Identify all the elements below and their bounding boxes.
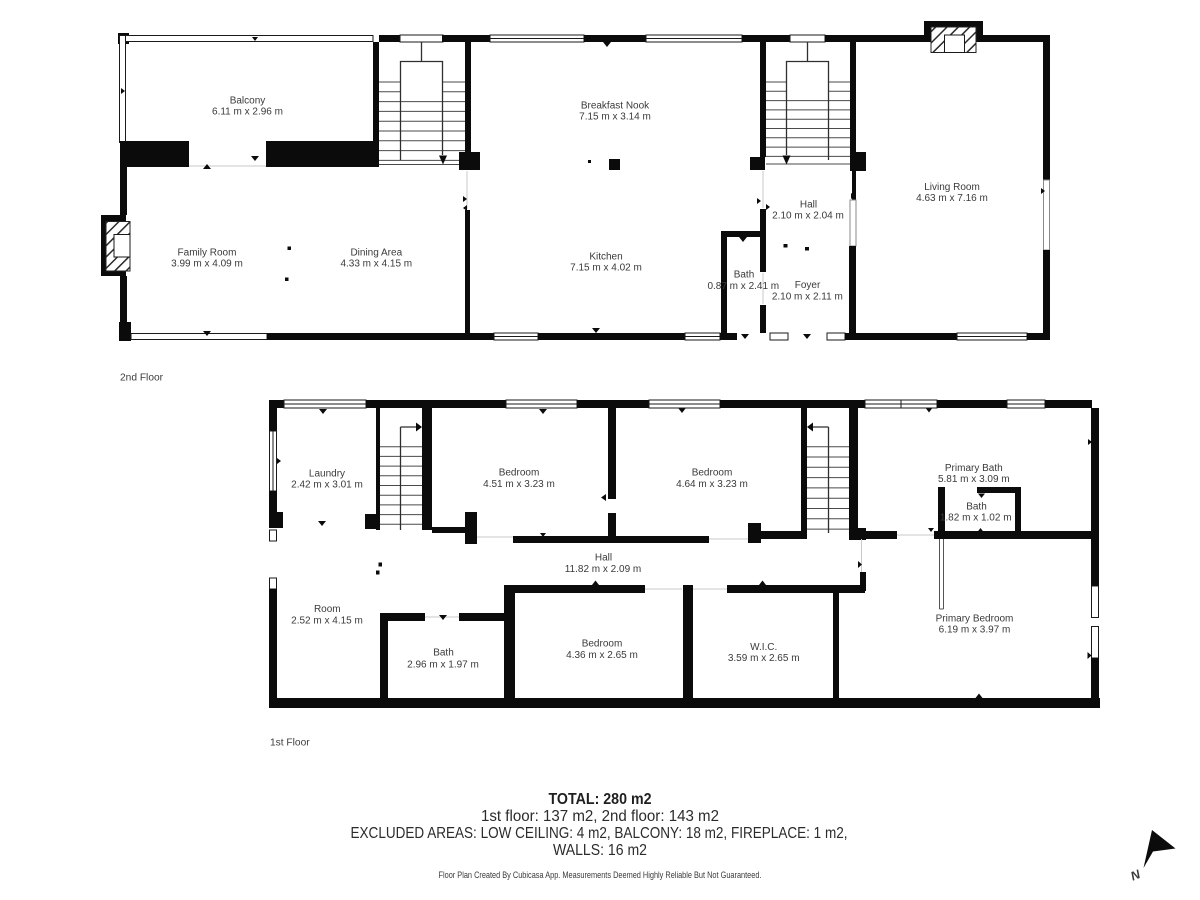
svg-text:0.87 m x 2.41 m: 0.87 m x 2.41 m: [707, 281, 779, 292]
svg-text:3.59 m x 2.65 m: 3.59 m x 2.65 m: [728, 653, 800, 664]
svg-text:Dining Area: Dining Area: [350, 247, 402, 258]
svg-text:Bedroom: Bedroom: [692, 468, 733, 479]
svg-text:W.I.C.: W.I.C.: [750, 642, 777, 653]
svg-text:Bath: Bath: [433, 648, 454, 659]
svg-text:Foyer: Foyer: [795, 280, 821, 291]
svg-text:Primary Bath: Primary Bath: [945, 463, 1003, 474]
svg-text:2.10 m x 2.11 m: 2.10 m x 2.11 m: [772, 291, 843, 302]
svg-text:2.96 m x 1.97 m: 2.96 m x 1.97 m: [407, 659, 479, 670]
svg-text:EXCLUDED AREAS: LOW CEILING: 4: EXCLUDED AREAS: LOW CEILING: 4 m2, BALCO…: [351, 825, 848, 842]
svg-text:TOTAL: 280 m2: TOTAL: 280 m2: [549, 791, 652, 808]
svg-text:11.82 m x 2.09 m: 11.82 m x 2.09 m: [565, 564, 642, 575]
svg-text:Bedroom: Bedroom: [582, 639, 623, 650]
svg-text:6.11 m x 2.96 m: 6.11 m x 2.96 m: [212, 107, 283, 118]
svg-text:2.42 m x 3.01 m: 2.42 m x 3.01 m: [291, 480, 363, 491]
svg-text:Room: Room: [314, 604, 341, 615]
svg-text:Bedroom: Bedroom: [499, 468, 540, 479]
svg-text:2nd Floor: 2nd Floor: [120, 373, 164, 384]
svg-text:1st floor: 137 m2, 2nd floor:: 1st floor: 137 m2, 2nd floor: 143 m2: [481, 808, 719, 825]
svg-text:4.63 m x 7.16 m: 4.63 m x 7.16 m: [916, 193, 988, 204]
svg-text:Laundry: Laundry: [309, 468, 345, 479]
svg-text:7.15 m x 3.14 m: 7.15 m x 3.14 m: [579, 112, 651, 123]
svg-text:WALLS: 16 m2: WALLS: 16 m2: [553, 842, 647, 859]
svg-text:Kitchen: Kitchen: [589, 251, 622, 262]
svg-text:3.99 m x 4.09 m: 3.99 m x 4.09 m: [171, 259, 243, 270]
svg-text:Primary Bedroom: Primary Bedroom: [936, 613, 1014, 624]
svg-text:1.82 m x 1.02 m: 1.82 m x 1.02 m: [940, 513, 1012, 524]
svg-text:Family Room: Family Room: [178, 247, 237, 258]
svg-text:Bath: Bath: [966, 501, 987, 512]
svg-text:6.19 m x 3.97 m: 6.19 m x 3.97 m: [939, 625, 1011, 636]
svg-text:2.52 m x 4.15 m: 2.52 m x 4.15 m: [291, 615, 363, 626]
svg-text:Floor Plan Created By Cubicasa: Floor Plan Created By Cubicasa App. Meas…: [439, 870, 762, 880]
svg-text:4.51 m x 3.23 m: 4.51 m x 3.23 m: [483, 479, 555, 490]
svg-text:Bath: Bath: [734, 270, 755, 281]
svg-text:4.33 m x 4.15 m: 4.33 m x 4.15 m: [340, 259, 412, 270]
svg-text:4.64 m x 3.23 m: 4.64 m x 3.23 m: [676, 479, 748, 490]
svg-text:Breakfast Nook: Breakfast Nook: [581, 100, 650, 111]
svg-text:2.10 m x 2.04 m: 2.10 m x 2.04 m: [772, 211, 844, 222]
svg-text:1st Floor: 1st Floor: [270, 737, 310, 748]
svg-text:Hall: Hall: [595, 553, 612, 564]
svg-text:Balcony: Balcony: [230, 95, 266, 106]
svg-text:Living Room: Living Room: [924, 182, 980, 193]
svg-text:5.81 m x 3.09 m: 5.81 m x 3.09 m: [938, 474, 1010, 485]
svg-text:4.36 m x 2.65 m: 4.36 m x 2.65 m: [566, 650, 638, 661]
svg-text:7.15 m x 4.02 m: 7.15 m x 4.02 m: [570, 263, 642, 274]
svg-text:Hall: Hall: [800, 199, 817, 210]
